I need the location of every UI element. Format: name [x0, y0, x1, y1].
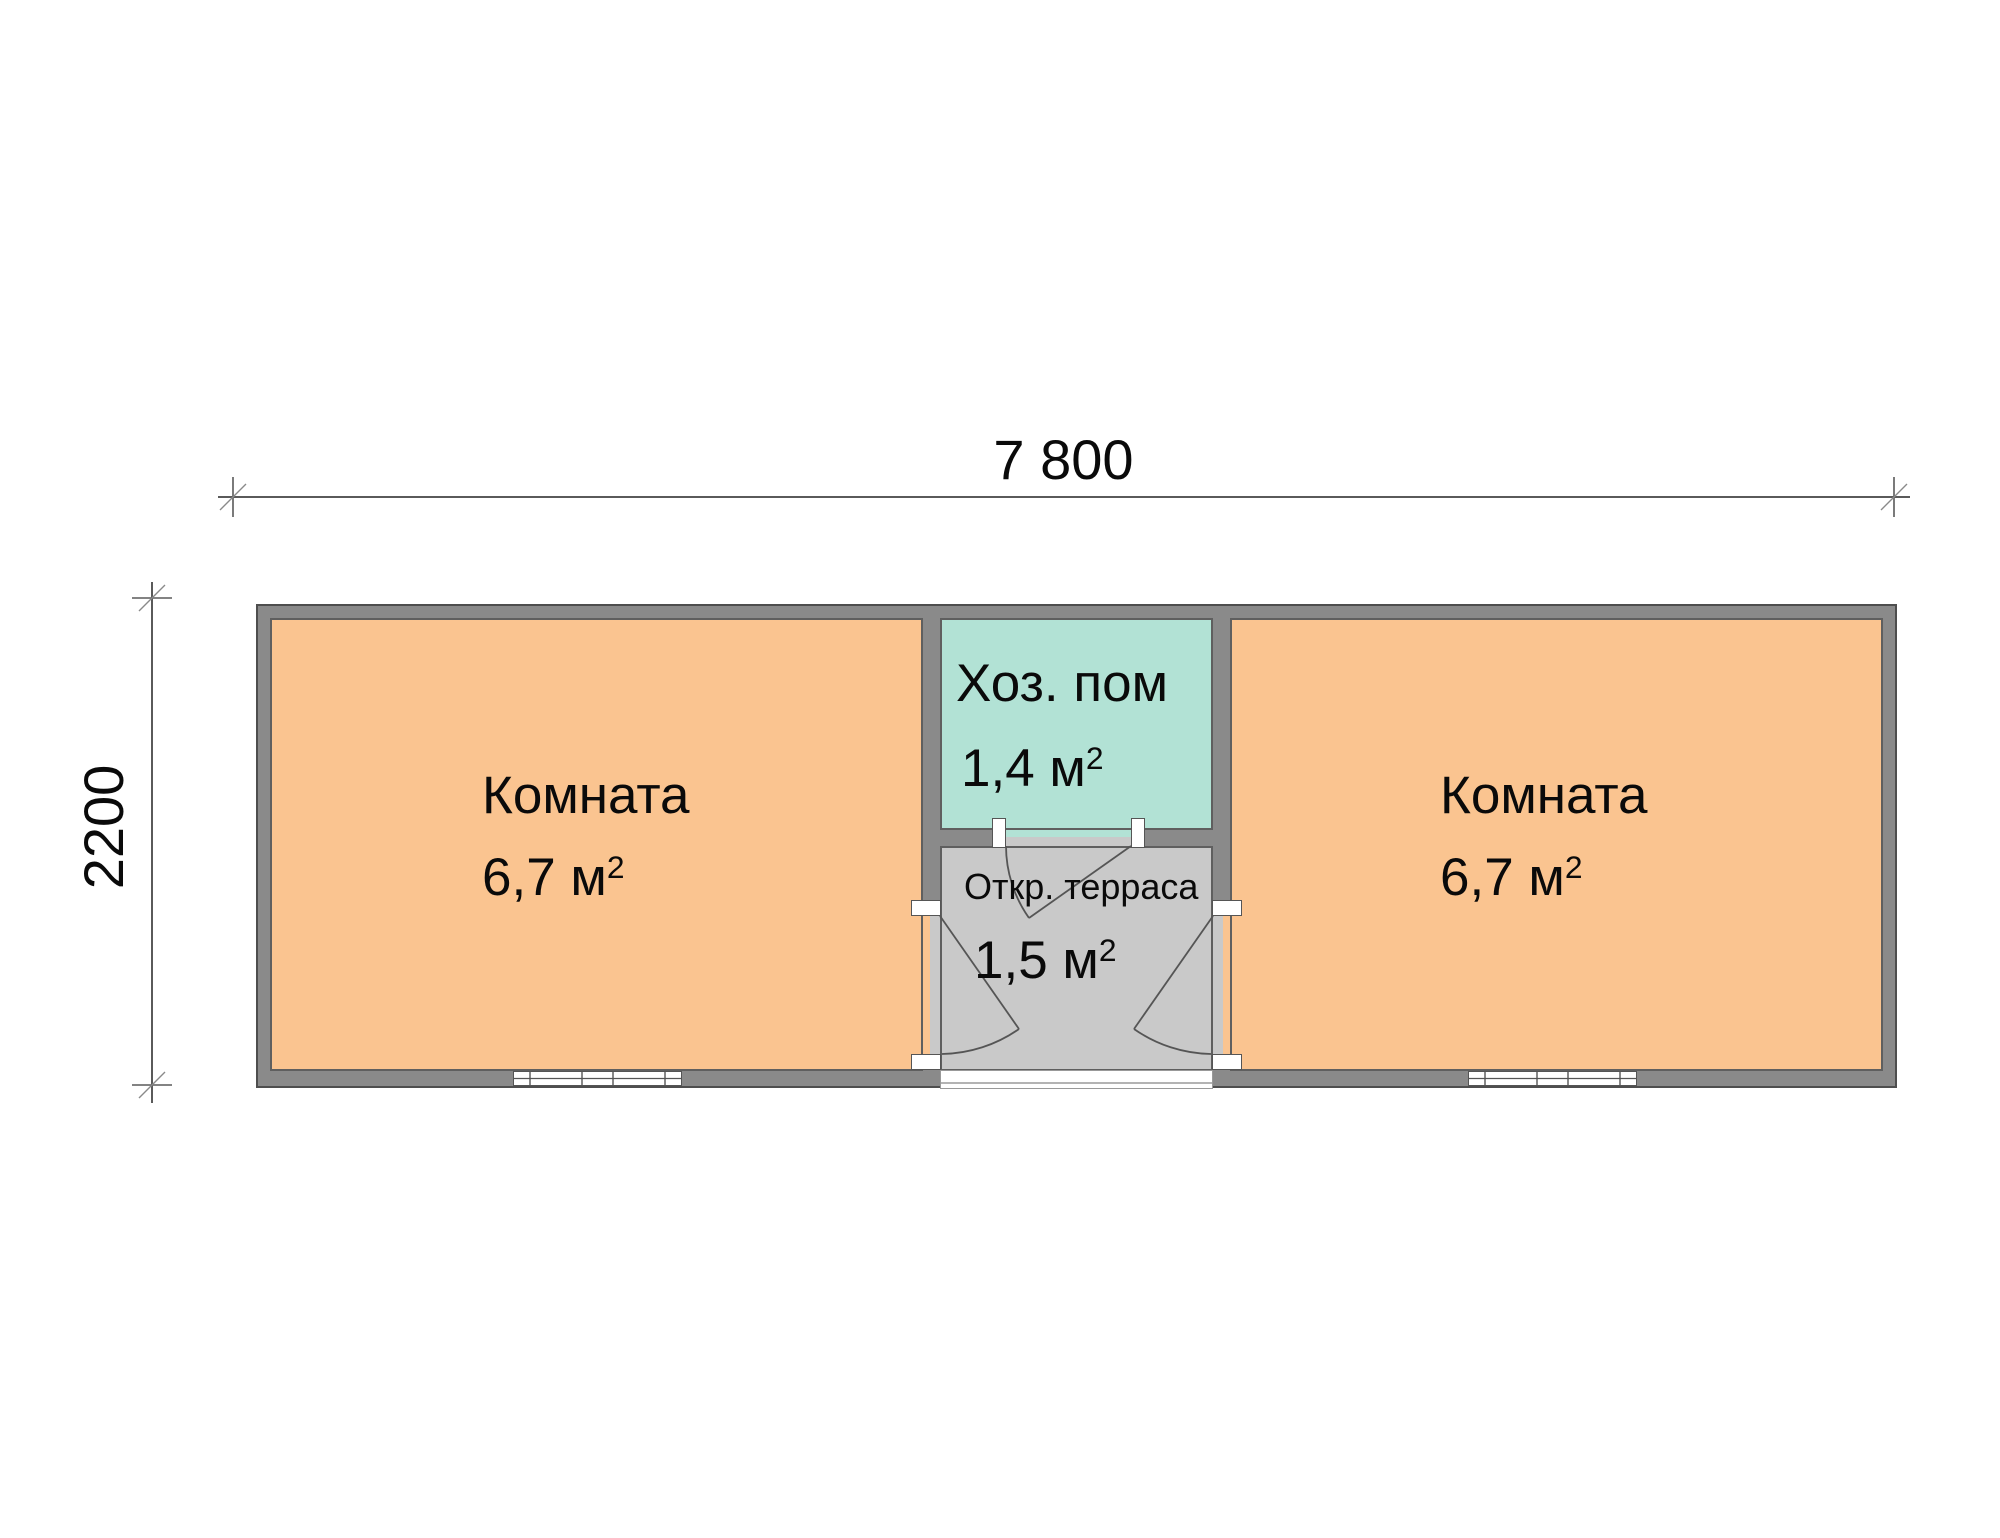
door-opening-utility — [1006, 830, 1131, 846]
floor-plan: 7 800 2200 Комната 6,7 м2 Хоз. пом 1,4 м… — [0, 0, 2000, 1538]
window-left — [513, 1071, 682, 1086]
door-jamb — [992, 818, 1006, 848]
door-jamb — [911, 1054, 941, 1070]
door-opening-left — [923, 916, 940, 1054]
dimension-width-label: 7 800 — [233, 432, 1894, 488]
room-right-name: Комната — [1440, 769, 1648, 822]
door-opening-right — [1213, 916, 1230, 1054]
door-jamb — [1131, 818, 1145, 848]
door-jamb — [911, 900, 941, 916]
window-right — [1468, 1071, 1637, 1086]
door-jamb — [1212, 900, 1242, 916]
entrance-threshold — [940, 1070, 1213, 1089]
utility-room-floor — [940, 618, 1213, 830]
room-left-floor — [270, 618, 923, 1071]
door-jamb — [1212, 1054, 1242, 1070]
room-left-area: 6,7 м2 — [482, 851, 625, 904]
terrace-name: Откр. терраса — [964, 869, 1198, 905]
utility-room-name: Хоз. пом — [956, 657, 1168, 710]
room-left-name: Комната — [482, 769, 690, 822]
room-right-area: 6,7 м2 — [1440, 851, 1583, 904]
dimension-height-label: 2200 — [76, 765, 132, 890]
terrace-area: 1,5 м2 — [974, 934, 1117, 987]
room-right-floor — [1230, 618, 1883, 1071]
utility-room-area: 1,4 м2 — [961, 742, 1104, 795]
dimension-line-left — [132, 582, 172, 1103]
